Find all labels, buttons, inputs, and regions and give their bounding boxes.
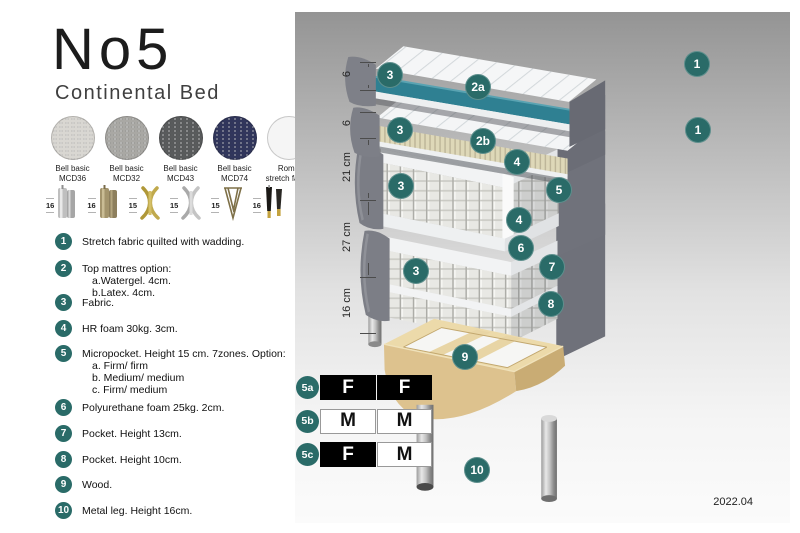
- part-item: 1Stretch fabric quilted with wadding.: [55, 233, 244, 250]
- firmness-row-label: 5b: [296, 410, 319, 433]
- wood-base: [384, 319, 565, 419]
- page-root: No5 Continental Bed Bell basicMCD36Bell …: [0, 0, 800, 533]
- leg-height-label: 16: [46, 201, 54, 210]
- fabric-swatch-label: MCD32: [102, 174, 151, 184]
- part-option: b. Medium/ medium: [92, 372, 286, 384]
- measurement-line: [368, 263, 369, 276]
- leg-option[interactable]: 16: [87, 185, 120, 226]
- fabric-swatch-circle: [51, 116, 95, 160]
- part-item: 10Metal leg. Height 16cm.: [55, 502, 192, 519]
- firmness-cell: F: [320, 442, 376, 467]
- callout-badge: 4: [504, 149, 530, 175]
- measurement-tick: [360, 90, 376, 91]
- measurement-label: 16 cm: [341, 273, 353, 333]
- leg-icon-tapered-black-gold: [262, 185, 286, 226]
- callout-badge: 9: [452, 344, 478, 370]
- part-text: Metal leg. Height 16cm.: [82, 502, 192, 517]
- measurement-line: [368, 140, 369, 145]
- leg-height-label: 16: [87, 201, 95, 210]
- part-number-badge: 1: [55, 233, 72, 250]
- measurement-tick: [360, 200, 376, 201]
- leg-option[interactable]: 15: [170, 185, 203, 226]
- part-option: a. Firm/ firm: [92, 360, 286, 372]
- page-title: No5: [52, 16, 173, 83]
- callout-badge: 8: [538, 291, 564, 317]
- part-item: 9Wood.: [55, 476, 112, 493]
- fabric-swatch-circle: [105, 116, 149, 160]
- leg-height-label: 16: [253, 201, 261, 210]
- fabric-swatch-label: MCD74: [210, 174, 259, 184]
- fabric-swatch-label: Bell basic: [48, 164, 97, 174]
- tick-mark: [211, 198, 219, 199]
- fabric-swatch-circle: [213, 116, 257, 160]
- callout-badge: 4: [506, 207, 532, 233]
- firmness-cell: F: [377, 375, 432, 400]
- firmness-cell: M: [320, 409, 376, 434]
- part-item: 8Pocket. Height 10cm.: [55, 451, 182, 468]
- part-text: Pocket. Height 13cm.: [82, 425, 182, 440]
- callout-badge: 1: [684, 51, 710, 77]
- tick-mark: [253, 212, 261, 213]
- fabric-swatch[interactable]: Bell basicMCD32: [102, 116, 151, 183]
- tick-mark: [129, 212, 137, 213]
- part-number-badge: 4: [55, 320, 72, 337]
- callout-badge: 5: [546, 177, 572, 203]
- fabric-swatch-label: Bell basic: [102, 164, 151, 174]
- callout-badge: 2a: [465, 74, 491, 100]
- callout-badge: 3: [403, 258, 429, 284]
- measurement-line: [368, 64, 369, 67]
- leg-icon-twist-silver: [179, 185, 203, 226]
- part-item: 4HR foam 30kg. 3cm.: [55, 320, 178, 337]
- leg-option[interactable]: 16: [46, 185, 79, 226]
- part-option: c. Firm/ medium: [92, 384, 286, 396]
- part-number-badge: 10: [55, 502, 72, 519]
- leg-icon-twist-gold: [138, 185, 162, 226]
- part-text: Stretch fabric quilted with wadding.: [82, 233, 244, 248]
- metal-leg-right: [541, 415, 557, 502]
- version-label: 2022.04: [713, 496, 753, 508]
- part-item: 7Pocket. Height 13cm.: [55, 425, 182, 442]
- callout-badge: 3: [388, 173, 414, 199]
- measurement-tick: [360, 277, 376, 278]
- part-item: 6Polyurethane foam 25kg. 2cm.: [55, 399, 224, 416]
- callout-badge: 7: [539, 254, 565, 280]
- part-text: Pocket. Height 10cm.: [82, 451, 182, 466]
- measurement-line: [368, 202, 369, 215]
- leg-height-label: 15: [211, 201, 219, 210]
- fabric-swatch[interactable]: Bell basicMCD43: [156, 116, 205, 183]
- leg-icon-cylinder-brass: [97, 185, 121, 226]
- measurement-line: [368, 193, 369, 198]
- part-number-badge: 2: [55, 260, 72, 277]
- leg-height-label: 15: [170, 201, 178, 210]
- tick-mark: [88, 212, 96, 213]
- measurement-line: [368, 85, 369, 88]
- firmness-cell: F: [320, 375, 376, 400]
- part-number-badge: 9: [55, 476, 72, 493]
- tick-mark: [211, 212, 219, 213]
- callout-badge: 6: [508, 235, 534, 261]
- part-text: Wood.: [82, 476, 112, 491]
- measurement-tick: [360, 62, 376, 63]
- fabric-swatch-label: MCD43: [156, 174, 205, 184]
- fabric-swatch-circle: [159, 116, 203, 160]
- part-number-badge: 5: [55, 345, 72, 362]
- fabric-swatch-label: Bell basic: [210, 164, 259, 174]
- firmness-cell: M: [377, 442, 432, 467]
- fabric-swatch-label: Bell basic: [156, 164, 205, 174]
- tick-mark: [46, 198, 54, 199]
- tick-mark: [46, 212, 54, 213]
- leg-options-row: 161615151516: [46, 185, 286, 226]
- part-text: Micropocket. Height 15 cm. 7zones. Optio…: [82, 345, 286, 396]
- leg-height-label: 15: [129, 201, 137, 210]
- part-item: 3Fabric.: [55, 294, 114, 311]
- part-number-badge: 7: [55, 425, 72, 442]
- measurement-tick: [360, 138, 376, 139]
- part-number-badge: 3: [55, 294, 72, 311]
- callout-badge: 1: [685, 117, 711, 143]
- leg-option[interactable]: 15: [129, 185, 162, 226]
- leg-icon-cylinder-silver: [55, 185, 79, 226]
- fabric-swatch[interactable]: Bell basicMCD36: [48, 116, 97, 183]
- measurement-tick: [360, 112, 376, 113]
- callout-badge: 3: [377, 62, 403, 88]
- firmness-row-label: 5a: [296, 376, 319, 399]
- part-item: 5Micropocket. Height 15 cm. 7zones. Opti…: [55, 345, 286, 396]
- part-number-badge: 8: [55, 451, 72, 468]
- page-subtitle: Continental Bed: [55, 82, 220, 105]
- part-option: a.Watergel. 4cm.: [92, 275, 171, 287]
- diagram-panel: 6621 cm27 cm16 cm 132a132b43546738910 5a…: [295, 12, 790, 523]
- part-text: HR foam 30kg. 3cm.: [82, 320, 178, 335]
- tick-mark: [88, 198, 96, 199]
- leg-option[interactable]: 15: [211, 185, 244, 226]
- part-number-badge: 6: [55, 399, 72, 416]
- part-text: Polyurethane foam 25kg. 2cm.: [82, 399, 224, 414]
- measurement-label: 27 cm: [341, 207, 353, 267]
- fabric-swatch-label: MCD36: [48, 174, 97, 184]
- tick-mark: [170, 198, 178, 199]
- callout-badge: 3: [387, 117, 413, 143]
- fabric-swatch-row: Bell basicMCD36Bell basicMCD32Bell basic…: [48, 116, 313, 183]
- part-text: Fabric.: [82, 294, 114, 309]
- tick-mark: [129, 198, 137, 199]
- callout-badge: 2b: [470, 128, 496, 154]
- leg-icon-hairpin: [221, 185, 245, 226]
- callout-badge: 10: [464, 457, 490, 483]
- measurement-tick: [360, 333, 376, 334]
- tick-mark: [170, 212, 178, 213]
- measurement-label: 21 cm: [341, 137, 353, 197]
- fabric-swatch[interactable]: Bell basicMCD74: [210, 116, 259, 183]
- leg-option[interactable]: 16: [253, 185, 286, 226]
- firmness-cell: M: [377, 409, 432, 434]
- tick-mark: [253, 198, 261, 199]
- firmness-row-label: 5c: [296, 443, 319, 466]
